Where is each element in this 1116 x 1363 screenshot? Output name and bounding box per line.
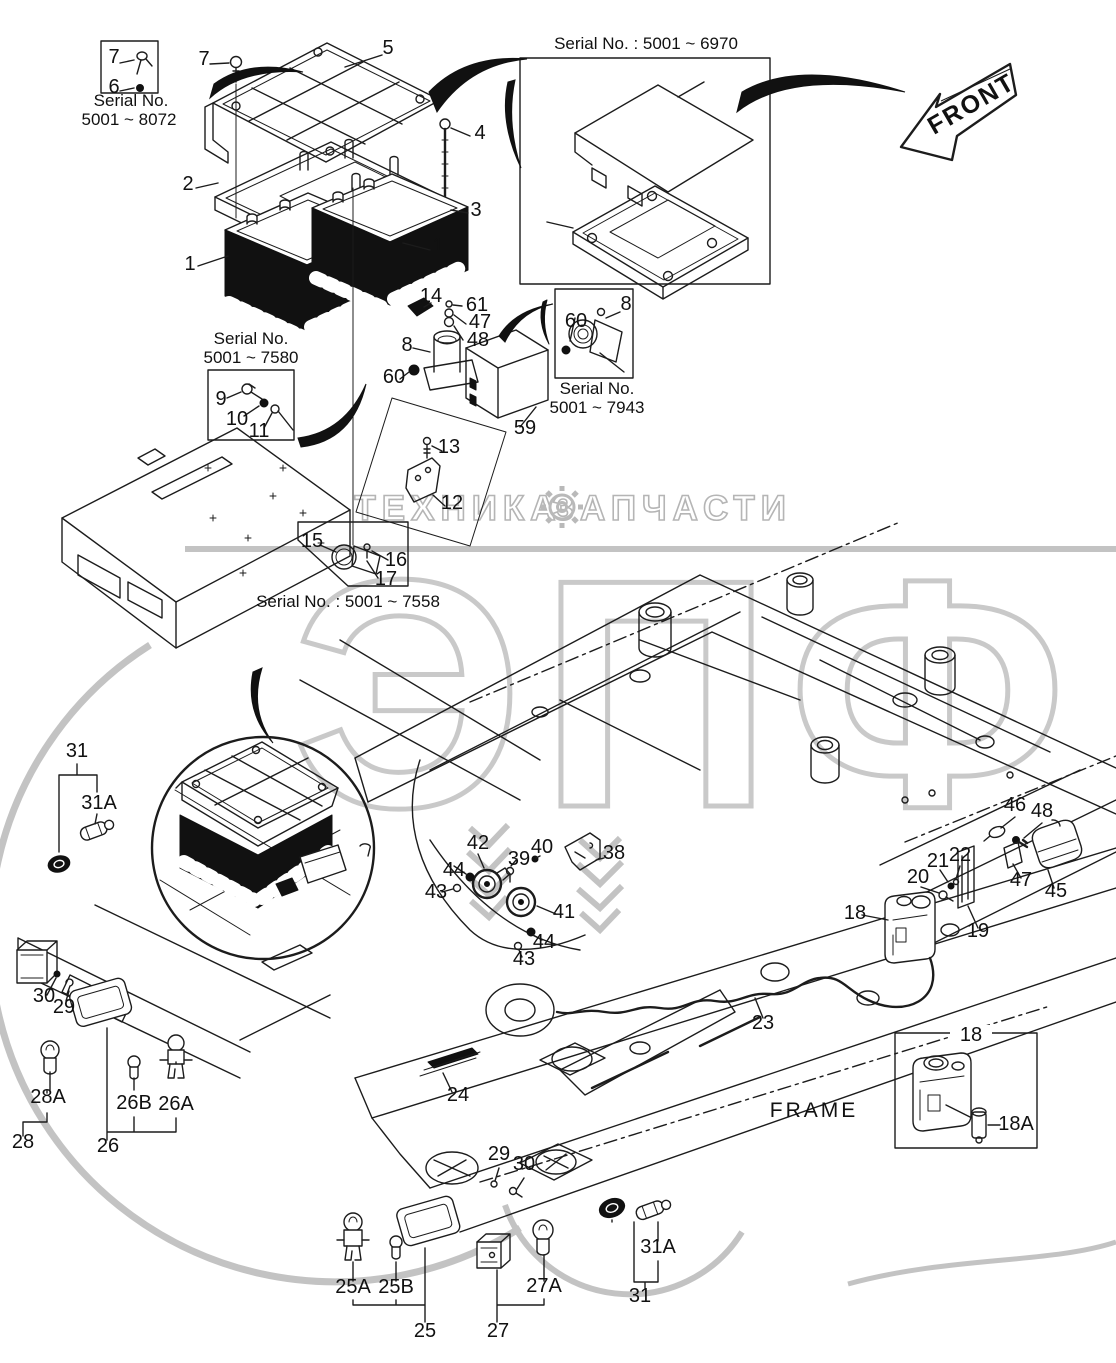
callout-8: 8 [620, 293, 631, 315]
bracket-26 [107, 1028, 176, 1140]
callout-30: 30 [513, 1153, 535, 1175]
callout-39: 39 [508, 848, 530, 870]
exploded-parts-diagram: ЭПФ ТЕХНИКА ЗАПЧАСТИ [0, 0, 1116, 1363]
serial-note: Serial No. : 5001 ~ 7558 [256, 592, 440, 611]
callout-1: 1 [184, 253, 195, 275]
callout-25B: 25B [378, 1276, 414, 1298]
callout-31: 31 [629, 1285, 651, 1307]
callout-24: 24 [447, 1084, 469, 1106]
callout-17: 17 [375, 568, 397, 590]
serial-note: 5001 ~ 7580 [203, 348, 298, 367]
watermark-layer: ЭПФ ТЕХНИКА ЗАПЧАСТИ [0, 486, 1116, 1294]
callout-10: 10 [226, 408, 248, 430]
grommet-31-bottom [597, 1195, 628, 1221]
callout-44: 44 [443, 859, 465, 881]
callout-7: 7 [108, 46, 119, 68]
callout-29: 29 [488, 1143, 510, 1165]
washer-tank-18 [885, 892, 935, 963]
lamp-lens-25 [395, 1195, 461, 1248]
callout-48: 48 [1031, 800, 1053, 822]
callout-15: 15 [301, 530, 323, 552]
bulb-28a [41, 1041, 59, 1074]
callout-14: 14 [420, 285, 442, 307]
leaders-18-23 [755, 915, 888, 1018]
callout-8: 8 [401, 334, 412, 356]
callout-25: 25 [414, 1320, 436, 1342]
watermark-big-text: ЭПФ [292, 512, 1082, 875]
callout-7: 7 [198, 48, 209, 70]
callout-9: 9 [215, 388, 226, 410]
callout-12: 12 [441, 492, 463, 514]
callout-43: 43 [513, 948, 535, 970]
callout-28A: 28A [30, 1086, 66, 1108]
horn-41 [507, 888, 535, 916]
callout-28: 28 [12, 1131, 34, 1153]
bracket-27 [477, 1234, 510, 1268]
bulb-31a-left [79, 818, 116, 842]
callout-40: 40 [531, 836, 553, 858]
callout-1: 1 [432, 235, 443, 257]
callout-44: 44 [533, 931, 555, 953]
callout-20: 20 [907, 866, 929, 888]
callout-13: 13 [438, 436, 460, 458]
inset-tray-2 [573, 186, 748, 299]
callout-2: 2 [182, 173, 193, 195]
washer-hose-23 [557, 958, 933, 1013]
callout-43: 43 [425, 881, 447, 903]
serial-note: Serial No. : 5001 ~ 6970 [554, 34, 738, 53]
front-frame-band [355, 848, 1116, 1232]
frame-label: FRAME [770, 1099, 859, 1122]
callout-26B: 26B [116, 1092, 152, 1114]
callout-29: 29 [53, 996, 75, 1018]
callout-46: 46 [1004, 794, 1026, 816]
callout-42: 42 [467, 832, 489, 854]
callout-3: 3 [470, 199, 481, 221]
callout-27: 27 [487, 1320, 509, 1342]
callout-5: 5 [382, 37, 393, 59]
callout-38: 38 [603, 842, 625, 864]
callout-30: 30 [33, 985, 55, 1007]
callout-18: 18 [960, 1024, 982, 1046]
inset-tank-18 [913, 1053, 972, 1131]
socket-25a [337, 1213, 369, 1260]
bolt-7-6-detail [137, 52, 153, 92]
serial-note: 5001 ~ 7943 [549, 398, 644, 417]
parts-diagram-page: ЭПФ ТЕХНИКА ЗАПЧАСТИ [0, 0, 1116, 1363]
callout-31A: 31A [640, 1236, 676, 1258]
serial-note: 5001 ~ 8072 [81, 110, 176, 129]
hardware-stack [445, 301, 454, 327]
callout-31: 31 [66, 740, 88, 762]
inset-cover-5 [575, 85, 753, 206]
callout-31A: 31A [81, 792, 117, 814]
bulb-27a [533, 1220, 553, 1255]
callout-27A: 27A [526, 1275, 562, 1297]
callout-41: 41 [553, 901, 575, 923]
callout-22: 22 [949, 844, 971, 866]
callout-18A: 18A [998, 1113, 1034, 1135]
callout-11: 11 [249, 420, 270, 442]
callout-21: 21 [927, 850, 949, 872]
battery-cover [205, 43, 440, 163]
callout-48: 48 [467, 329, 489, 351]
callout-59: 59 [514, 417, 536, 439]
watermark-word-right: ЗАПЧАСТИ [552, 489, 792, 528]
callout-19: 19 [967, 920, 989, 942]
callout-26A: 26A [158, 1093, 194, 1115]
bulb-31a-bottom [635, 1197, 673, 1221]
bulb-25b [390, 1236, 402, 1259]
left-parts [17, 764, 192, 1140]
front-arrow: FRONT [901, 64, 1020, 160]
callout-25A: 25A [335, 1276, 371, 1298]
serial-note: Serial No. [214, 329, 289, 348]
callout-23: 23 [752, 1012, 774, 1034]
callout-26: 26 [97, 1135, 119, 1157]
inset-6970 [520, 58, 770, 299]
callout-45: 45 [1045, 880, 1067, 902]
serial-note: Serial No. [94, 91, 169, 110]
callout-60: 60 [383, 366, 405, 388]
callout-18: 18 [844, 902, 866, 924]
serial-note: Serial No. [560, 379, 635, 398]
watermark-wave [848, 1242, 1116, 1284]
bulb-26b [128, 1056, 140, 1079]
grommet-31-left [46, 853, 71, 874]
callout-60: 60 [565, 310, 587, 332]
inset-7943 [541, 289, 633, 378]
callout-6: 6 [108, 76, 119, 98]
callout-4: 4 [474, 122, 485, 144]
pump-18a [972, 1108, 986, 1143]
callout-47: 47 [1010, 869, 1032, 891]
